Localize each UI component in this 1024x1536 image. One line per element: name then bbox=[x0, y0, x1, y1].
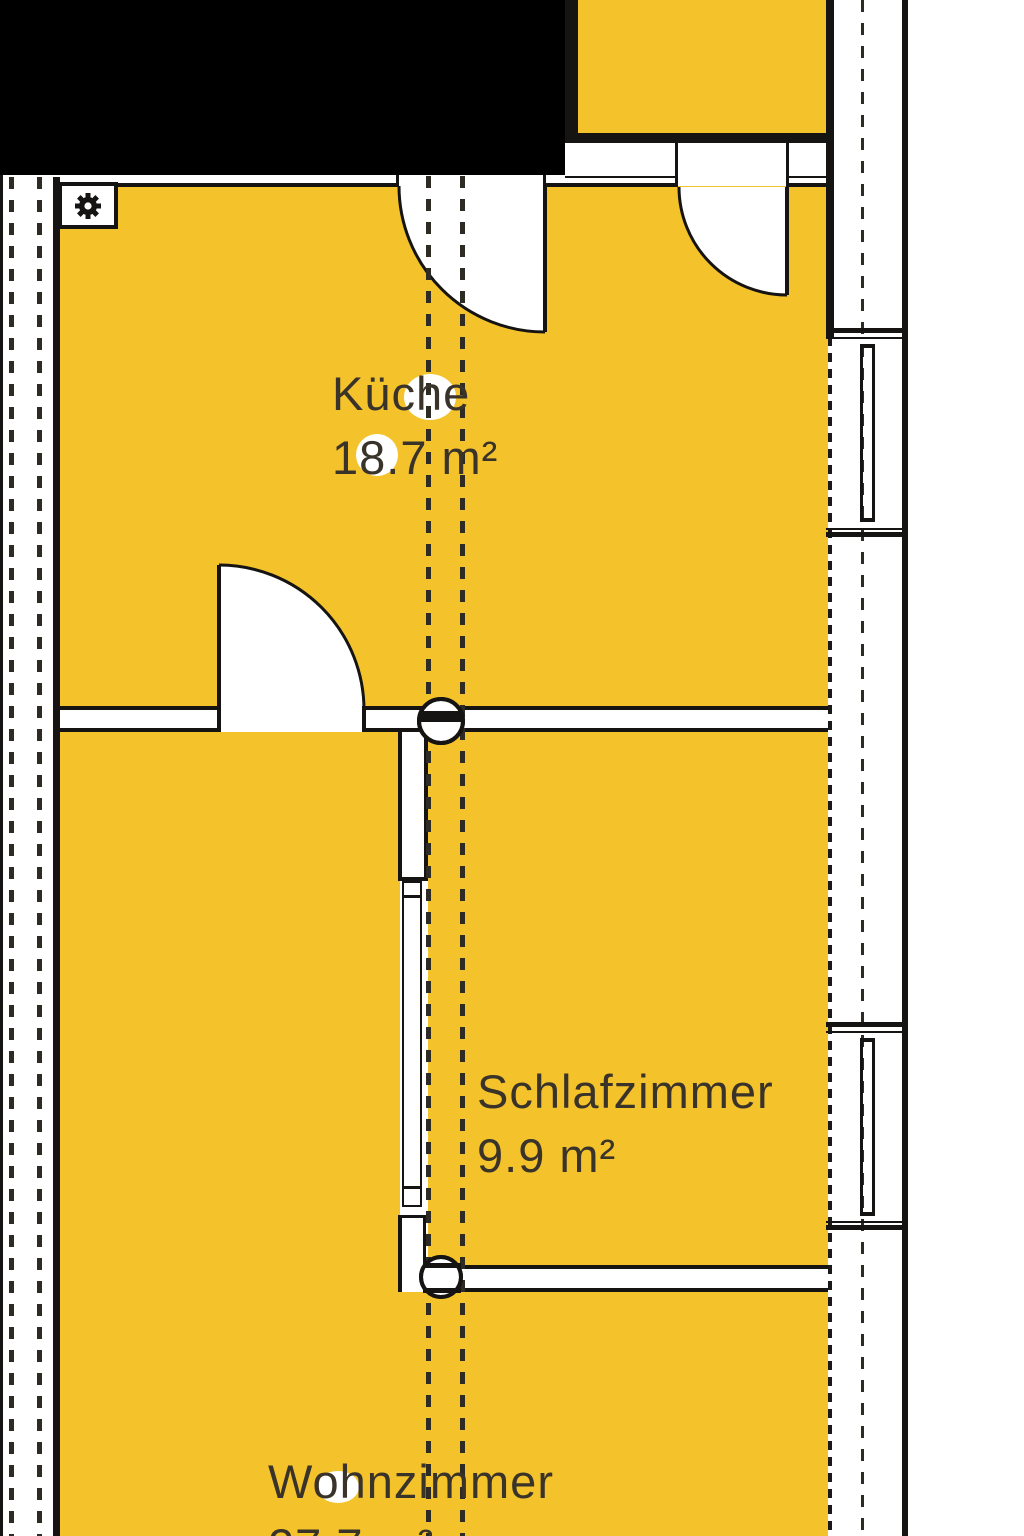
room-area: 27.7 m² bbox=[268, 1514, 554, 1536]
redaction-box bbox=[0, 0, 565, 175]
room-label-wohnzimmer: Wohnzimmer 27.7 m² bbox=[268, 1450, 554, 1536]
room-label-kueche: Küche 18.7 m² bbox=[332, 362, 498, 490]
corner-symbol-box bbox=[58, 182, 118, 229]
pipe-circle-icon bbox=[421, 1257, 461, 1297]
junction-symbols-layer bbox=[0, 0, 1024, 1536]
room-name: Küche bbox=[332, 362, 498, 426]
floor-plan: Küche 18.7 m² Schlafzimmer 9.9 m² Wohnzi… bbox=[0, 0, 1024, 1536]
pipe-circle-icon bbox=[419, 699, 463, 743]
room-area: 9.9 m² bbox=[477, 1124, 774, 1188]
room-area: 18.7 m² bbox=[332, 426, 498, 490]
room-label-schlafzimmer: Schlafzimmer 9.9 m² bbox=[477, 1060, 774, 1188]
room-name: Wohnzimmer bbox=[268, 1450, 554, 1514]
gear-icon bbox=[62, 186, 114, 225]
room-name: Schlafzimmer bbox=[477, 1060, 774, 1124]
